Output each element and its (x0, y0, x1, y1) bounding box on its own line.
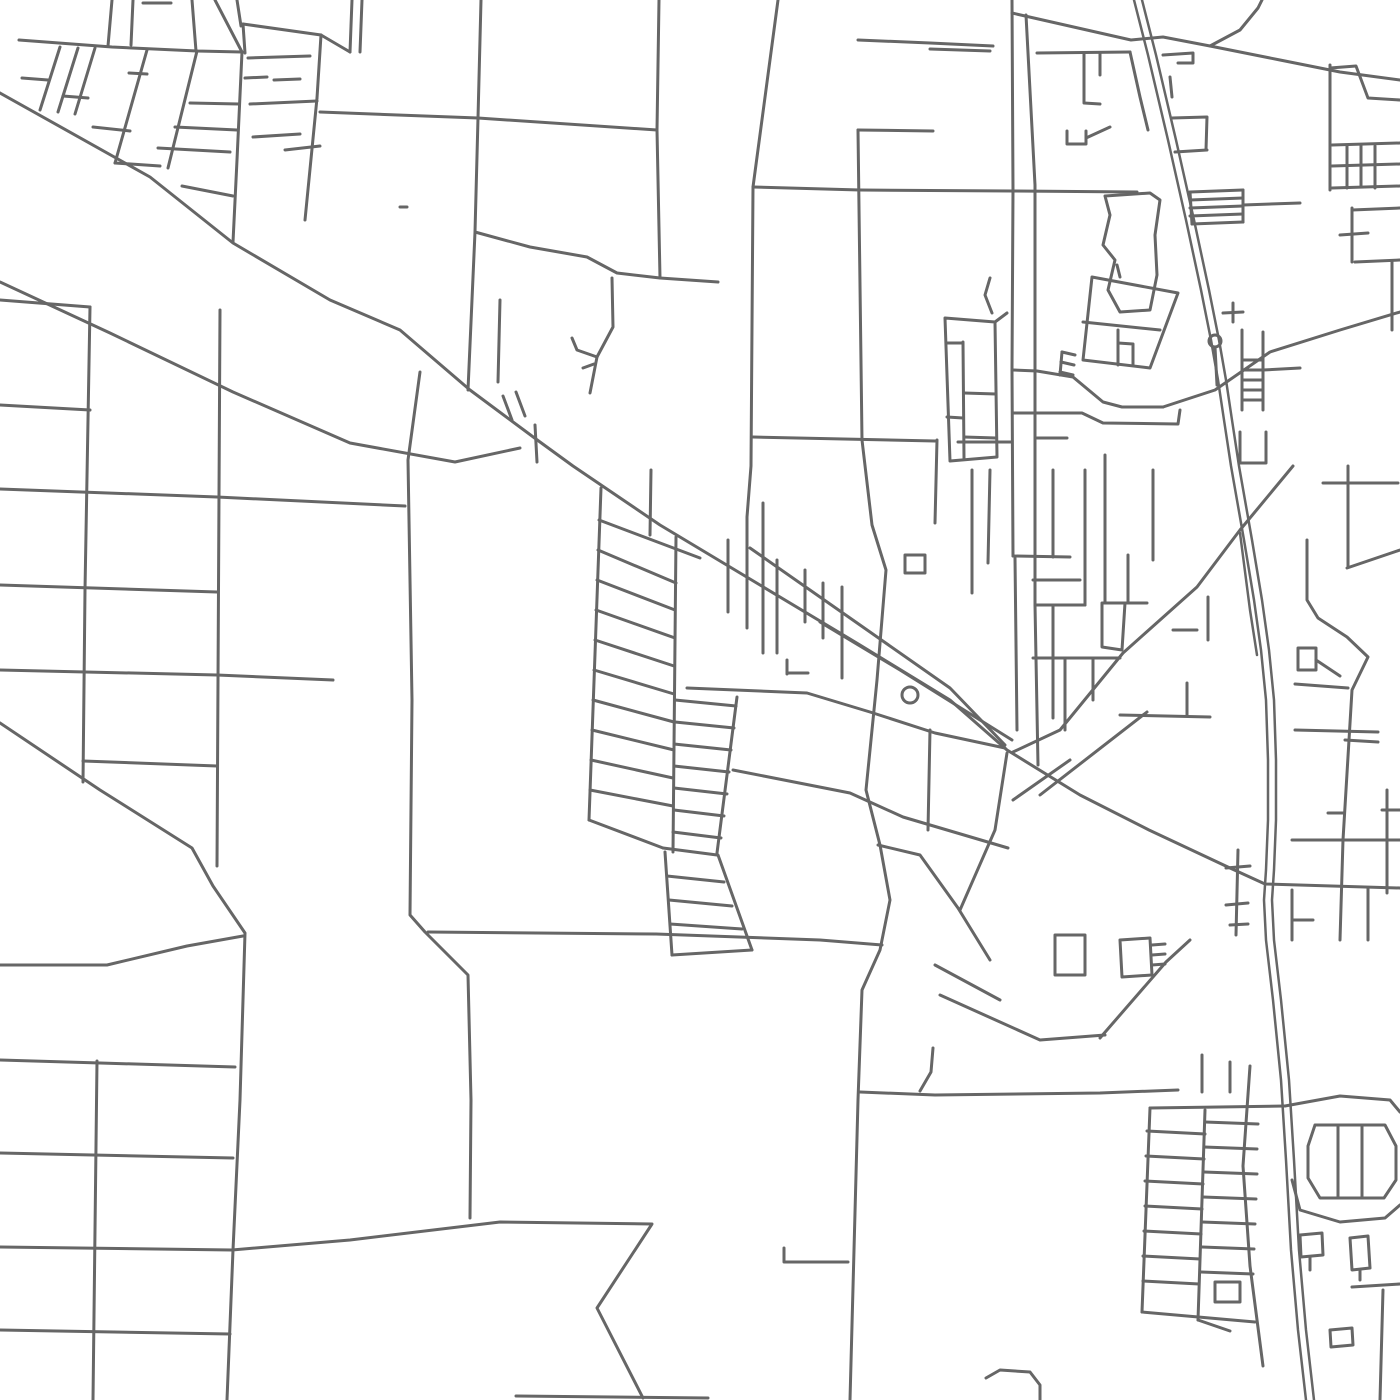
road (1117, 265, 1120, 277)
road (1202, 1247, 1254, 1249)
road (1192, 222, 1243, 224)
road (1130, 52, 1148, 130)
road (930, 49, 990, 51)
road (1067, 131, 1086, 144)
road (657, 0, 660, 278)
ladder-rung (595, 640, 674, 666)
road (995, 313, 1007, 322)
road (233, 52, 242, 242)
road (1198, 1320, 1230, 1331)
road (960, 753, 1007, 910)
road (583, 364, 594, 368)
road (0, 936, 243, 965)
road (1147, 1131, 1205, 1134)
road (964, 393, 996, 394)
road (928, 730, 930, 830)
road (0, 1060, 235, 1067)
road (115, 163, 160, 166)
ladder-rung (670, 924, 742, 929)
road (935, 440, 937, 523)
road (1013, 556, 1070, 557)
road (1204, 1147, 1257, 1149)
cul-de-sac-circle (902, 687, 918, 703)
road (1201, 1272, 1253, 1274)
road (245, 77, 267, 78)
road (1012, 0, 1013, 556)
road (1013, 410, 1180, 424)
road (516, 392, 525, 416)
road (784, 1248, 848, 1262)
road (321, 35, 350, 52)
road (468, 0, 481, 390)
road (75, 48, 95, 114)
map-canvas (0, 0, 1400, 1400)
road (0, 489, 405, 506)
road (360, 0, 362, 52)
road (1143, 1256, 1200, 1259)
road (320, 112, 657, 130)
road (1263, 368, 1300, 370)
road (940, 995, 1105, 1040)
road (0, 1153, 233, 1158)
road (350, 0, 352, 52)
road (1102, 603, 1125, 650)
road (1143, 1281, 1199, 1284)
road (475, 232, 718, 282)
road (589, 820, 663, 848)
ladder-rung (675, 722, 734, 728)
ladder-rail (589, 488, 601, 820)
road (1198, 1110, 1205, 1320)
road (1061, 362, 1074, 365)
road (1152, 954, 1165, 955)
road (1190, 190, 1243, 192)
ladder-rung (675, 700, 736, 706)
block-outline (1120, 938, 1152, 977)
road (1015, 558, 1017, 730)
road (129, 73, 147, 74)
s-curve-road (850, 130, 890, 1400)
ladder-rung (596, 610, 675, 638)
road (1230, 924, 1248, 925)
road (1295, 684, 1348, 688)
road (820, 622, 1012, 740)
road (237, 0, 241, 26)
road (1295, 730, 1378, 732)
road (858, 130, 933, 131)
road (1163, 53, 1193, 63)
ladder-rail (717, 697, 737, 853)
road (1210, 46, 1400, 80)
road (1298, 648, 1316, 670)
road (663, 848, 717, 855)
ladder-rung (597, 580, 675, 610)
road (1332, 164, 1400, 166)
road (190, 103, 239, 104)
road (1215, 1282, 1240, 1302)
road (217, 310, 220, 866)
road (985, 278, 992, 313)
road (83, 761, 217, 766)
ladder-rung (674, 766, 729, 772)
road (935, 965, 1000, 1000)
ladder-rung (674, 810, 724, 816)
ladder-rung (590, 790, 673, 806)
road (428, 932, 882, 945)
road (572, 338, 597, 357)
road (988, 470, 990, 563)
street-map (0, 0, 1400, 1400)
road (753, 437, 935, 441)
road (1352, 1284, 1400, 1287)
block-outline (1300, 1233, 1323, 1257)
road (1084, 53, 1100, 104)
road (83, 307, 90, 782)
road (1145, 1181, 1203, 1184)
road (1118, 343, 1133, 365)
road (1086, 127, 1110, 138)
ladder-rung (591, 760, 673, 778)
road (964, 437, 996, 438)
lower-diagonal-road (0, 282, 520, 462)
ladder-rung (674, 788, 727, 794)
road (0, 585, 217, 592)
road (0, 1330, 230, 1334)
road (1205, 1122, 1258, 1124)
road (1380, 1290, 1383, 1400)
road (1240, 432, 1266, 463)
road (1145, 1206, 1202, 1209)
road (58, 48, 78, 112)
stadium-oval (1308, 1125, 1396, 1198)
road (1236, 850, 1238, 935)
road (1345, 740, 1378, 742)
road (1204, 1172, 1257, 1174)
road (175, 127, 237, 130)
road (650, 470, 651, 535)
road (108, 0, 112, 46)
road (1332, 186, 1400, 188)
road (1100, 940, 1190, 1038)
ladder-rung (593, 700, 674, 722)
road (158, 148, 230, 152)
road (1340, 233, 1368, 235)
road (986, 1370, 1040, 1400)
road (947, 417, 963, 418)
road (1226, 903, 1248, 905)
road (253, 134, 300, 137)
road (1040, 712, 1147, 795)
ladder-rung (673, 832, 721, 838)
road (1150, 1106, 1285, 1108)
road (1152, 944, 1165, 945)
ladder-rail (665, 852, 672, 955)
road (274, 79, 300, 80)
road (248, 56, 310, 58)
road (1202, 1222, 1255, 1224)
road (408, 372, 471, 1218)
road (305, 98, 317, 220)
road (1026, 15, 1038, 765)
ladder-rung (592, 730, 674, 750)
block-outline (1055, 935, 1085, 975)
road (1146, 1156, 1204, 1159)
road (860, 1090, 1178, 1095)
road (115, 50, 147, 163)
ladder-rung (594, 670, 674, 694)
road (1062, 352, 1075, 355)
road (1190, 214, 1243, 216)
road (1190, 198, 1243, 200)
road (1144, 1231, 1201, 1234)
road (753, 187, 1137, 192)
road (1292, 1180, 1400, 1222)
road (250, 101, 317, 104)
road (920, 1048, 933, 1091)
road (0, 670, 333, 680)
road (1083, 322, 1160, 330)
road (1243, 203, 1300, 205)
road (498, 300, 500, 382)
road (905, 555, 925, 573)
road (535, 425, 537, 462)
road (516, 1396, 708, 1398)
loop-road (1103, 193, 1160, 312)
road (878, 845, 990, 960)
block-outline (1350, 1236, 1370, 1270)
road (1226, 866, 1250, 868)
road (1170, 77, 1172, 97)
ladder-rung (667, 876, 724, 882)
block-outline (1330, 1328, 1353, 1347)
road (1285, 1096, 1400, 1112)
road (243, 24, 245, 53)
ladder-rung (598, 550, 676, 583)
road (1316, 660, 1340, 676)
road (0, 300, 90, 307)
road (590, 278, 613, 393)
road (858, 40, 993, 46)
road (1332, 143, 1400, 145)
road (317, 35, 321, 98)
ladder-rung (669, 900, 732, 906)
road (1060, 352, 1062, 375)
road (0, 405, 90, 410)
road (672, 950, 752, 955)
road (285, 146, 320, 150)
road (243, 24, 321, 35)
northeast-diagonal-road (1163, 312, 1400, 407)
road (1190, 206, 1243, 208)
road (1347, 550, 1400, 568)
road (192, 0, 196, 51)
road (63, 96, 88, 98)
ladder-rung (674, 744, 731, 750)
road (131, 0, 133, 45)
road (1352, 208, 1400, 210)
road (182, 186, 233, 196)
road (1120, 715, 1210, 717)
road (1203, 1197, 1256, 1199)
zigzag-road (0, 1222, 652, 1398)
road (93, 1061, 97, 1400)
road (22, 78, 48, 80)
block-outline (945, 318, 997, 461)
